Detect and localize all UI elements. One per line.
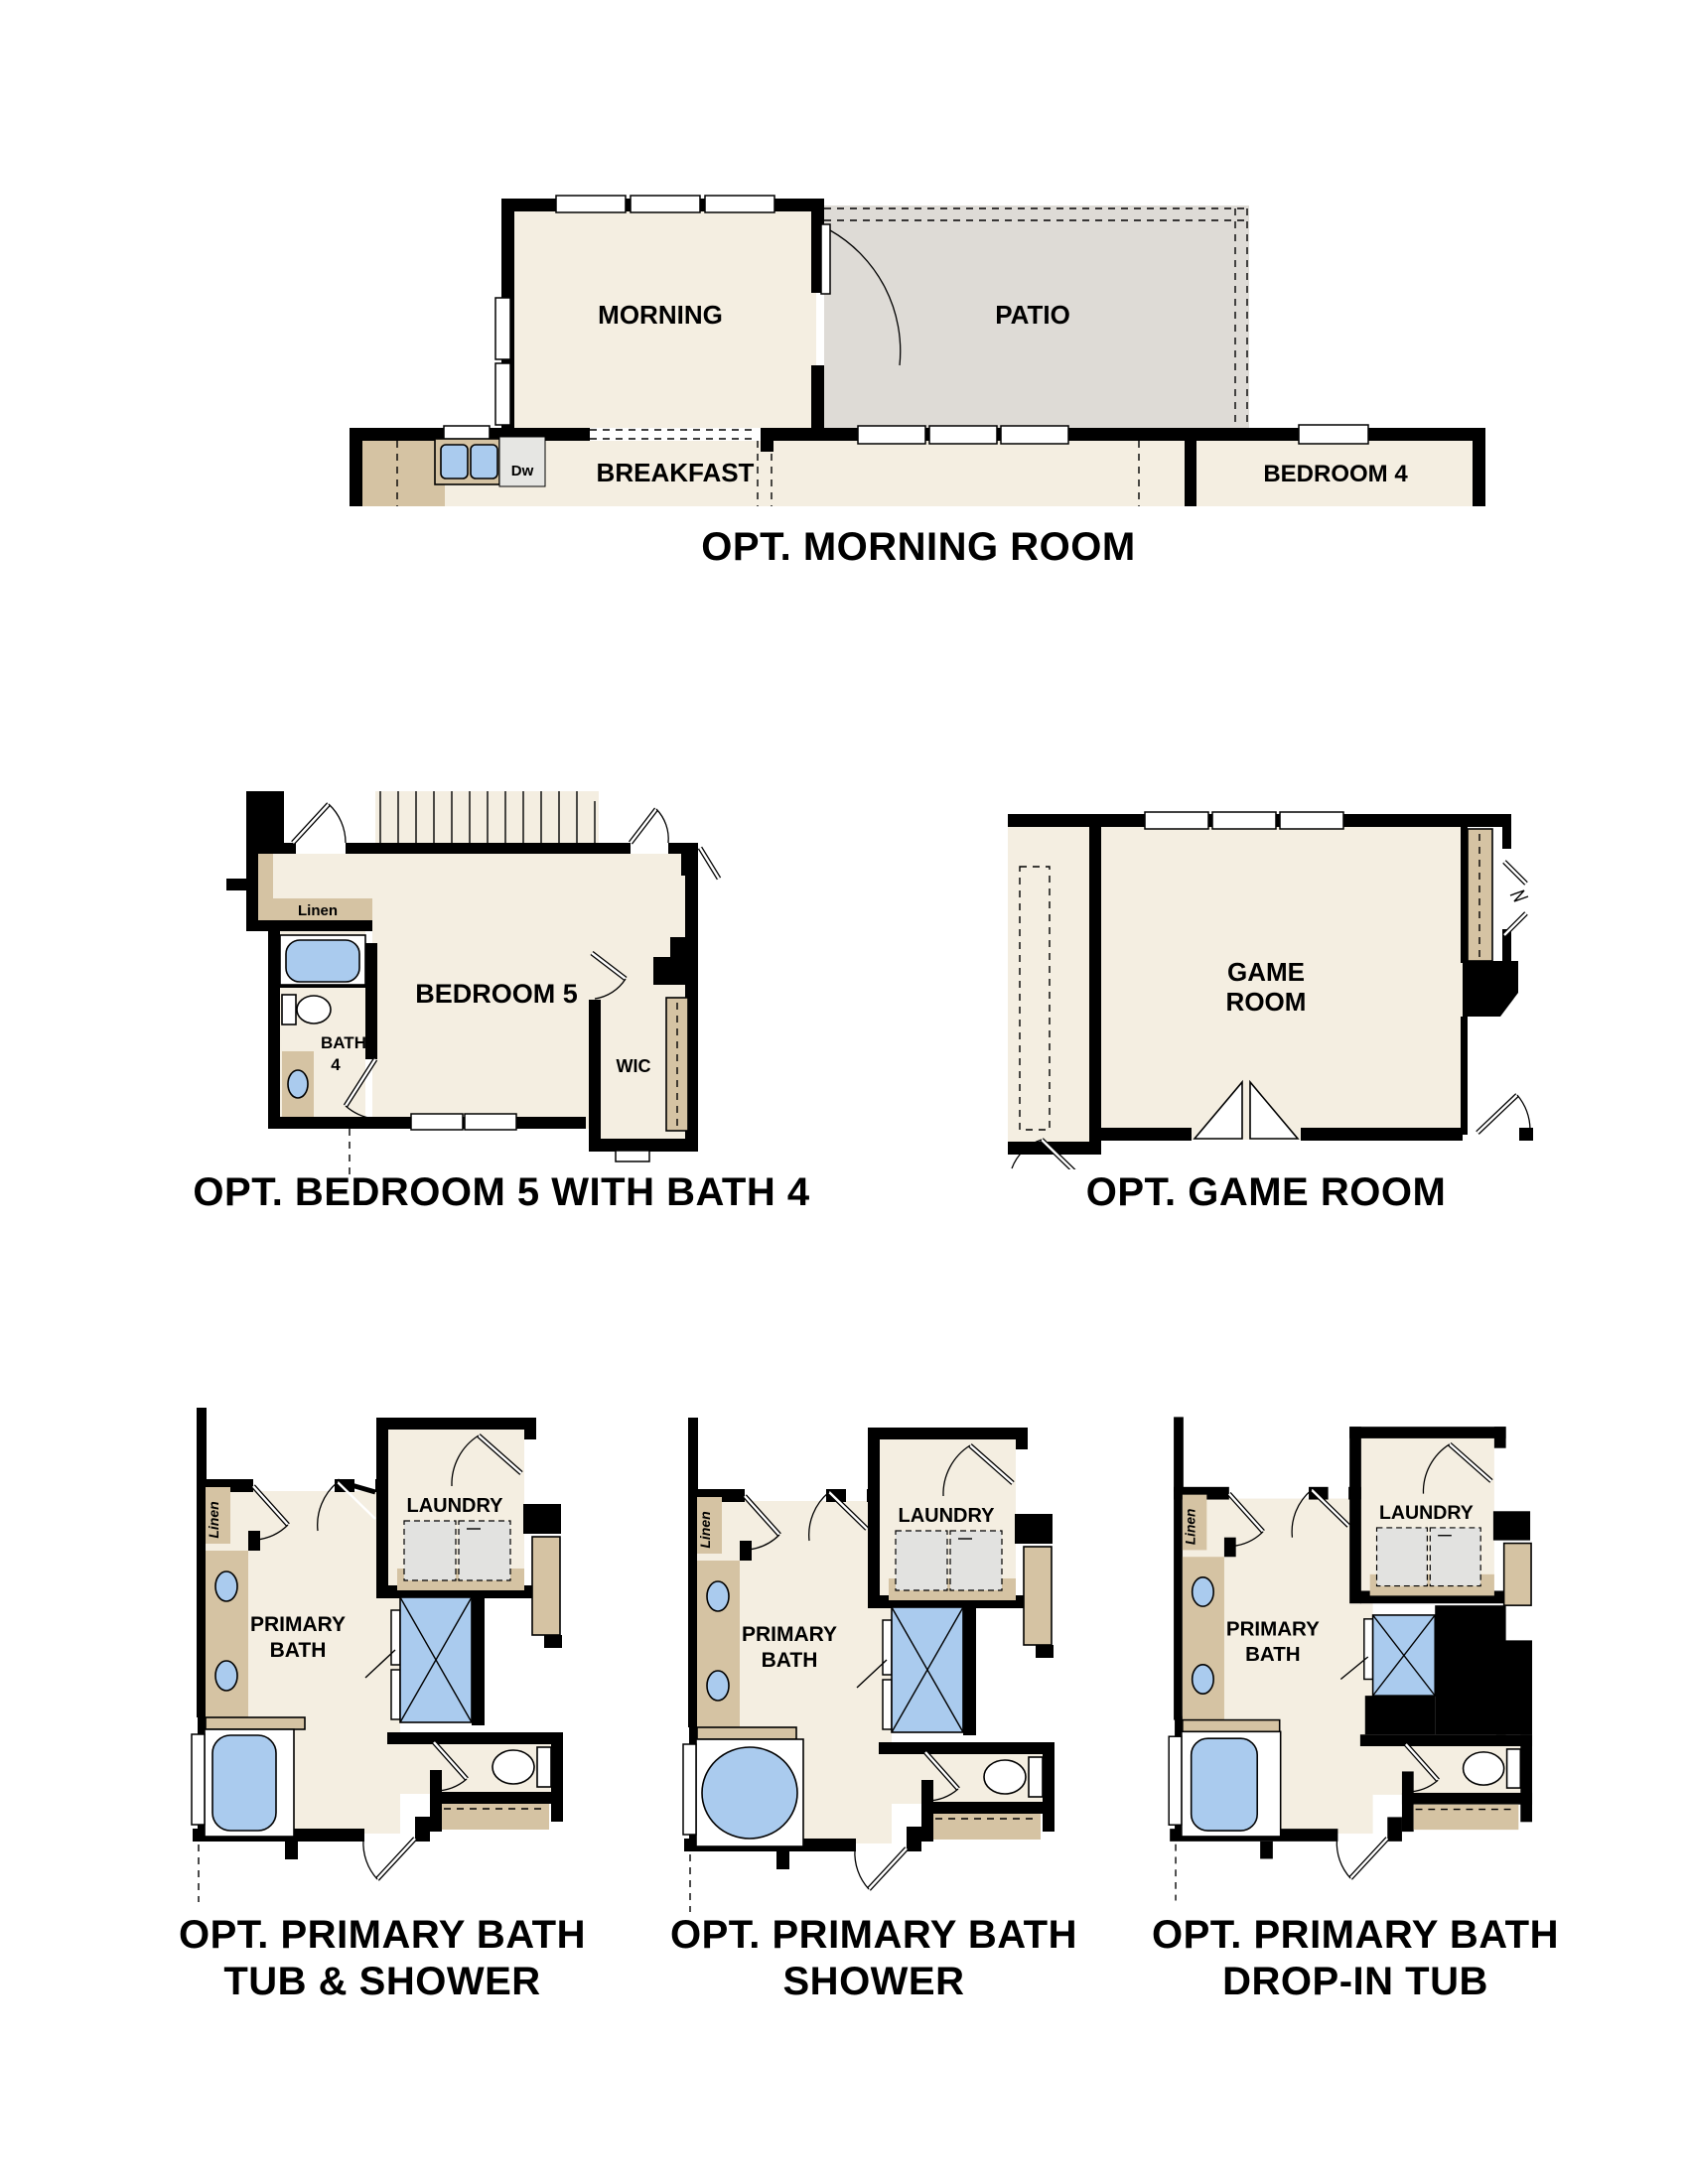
linen-label: Linen bbox=[298, 902, 338, 919]
primary-bath-label-line1: PRIMARY bbox=[250, 1613, 346, 1636]
floor-plan-primary-bath-dropin-tub: Linen LAUNDRY bbox=[1127, 1390, 1584, 1924]
washer bbox=[404, 1521, 456, 1580]
bath4-label-line2: 4 bbox=[331, 1055, 341, 1074]
linen-label: Linen bbox=[206, 1501, 221, 1538]
wic-vent bbox=[616, 1151, 649, 1161]
hall-closet bbox=[532, 1537, 560, 1635]
hall-closet bbox=[1504, 1544, 1531, 1606]
floor-plan-primary-bath-tub-shower: Linen LAUNDRY bbox=[149, 1380, 616, 1926]
toilet-bowl bbox=[297, 996, 331, 1024]
laundry-label: LAUNDRY bbox=[1379, 1502, 1474, 1524]
laundry-label: LAUNDRY bbox=[898, 1505, 995, 1527]
caption-bedroom5: OPT. BEDROOM 5 WITH BATH 4 bbox=[179, 1169, 824, 1216]
washer bbox=[1377, 1528, 1428, 1586]
toilet-bowl bbox=[984, 1760, 1026, 1794]
dishwasher-label: Dw bbox=[511, 463, 534, 479]
tub-backsplash bbox=[697, 1727, 796, 1739]
tub-backsplash bbox=[1183, 1720, 1280, 1732]
caption-game-room: OPT. GAME ROOM bbox=[978, 1169, 1554, 1216]
vanity-sink-top bbox=[707, 1581, 729, 1611]
window-row-patio-wall bbox=[856, 426, 1070, 444]
caption-primary-bath-tub-shower: OPT. PRIMARY BATHTUB & SHOWER bbox=[144, 1912, 621, 2005]
primary-bath-label-line1: PRIMARY bbox=[742, 1623, 837, 1646]
wic-label: WIC bbox=[617, 1056, 651, 1076]
tub-window bbox=[683, 1744, 696, 1835]
floor-plan-bedroom5: Linen BATH 4 WIC bbox=[226, 766, 723, 1178]
toilet-bowl bbox=[492, 1750, 534, 1784]
primary-bath-label-line2: BATH bbox=[270, 1639, 327, 1662]
vanity-sink-bottom bbox=[707, 1671, 729, 1701]
vanity-sink-bottom bbox=[215, 1661, 237, 1691]
entry-door-bottom bbox=[855, 1848, 907, 1889]
bedroom4-window bbox=[1299, 425, 1368, 444]
sink-bowl-right bbox=[471, 445, 497, 478]
bathtub-alcove bbox=[192, 1729, 294, 1837]
bathtub bbox=[1192, 1738, 1258, 1831]
linen-closet: Linen bbox=[258, 854, 372, 920]
game-room-label-line1: GAME bbox=[1227, 957, 1305, 987]
tub-window bbox=[192, 1734, 205, 1825]
linen-label: Linen bbox=[1184, 1509, 1198, 1546]
primary-bath-label-line2: BATH bbox=[762, 1649, 818, 1672]
floor-plan-options-sheet: Dw BREAKFAST BEDROOM 4 MORNING PATIO OPT… bbox=[0, 0, 1688, 2184]
primary-bath-label-line1: PRIMARY bbox=[1226, 1617, 1320, 1640]
game-room-label-line2: ROOM bbox=[1226, 987, 1307, 1017]
shower bbox=[1364, 1615, 1435, 1696]
bottom-right-door bbox=[1477, 1095, 1530, 1133]
caption-morning-room: OPT. MORNING ROOM bbox=[348, 524, 1489, 571]
shower bbox=[883, 1607, 963, 1732]
patio-label: PATIO bbox=[995, 300, 1070, 330]
toilet-tank bbox=[1029, 1757, 1043, 1797]
window-row-top bbox=[556, 196, 774, 212]
right-double-door bbox=[1504, 862, 1528, 935]
caption-primary-bath-dropin-tub: OPT. PRIMARY BATHDROP-IN TUB bbox=[1117, 1912, 1594, 2005]
bedroom5-label: BEDROOM 5 bbox=[415, 979, 578, 1009]
breakfast-label: BREAKFAST bbox=[597, 458, 755, 487]
tub-backsplash bbox=[206, 1717, 305, 1729]
entry-door-top bbox=[293, 804, 346, 843]
caption-primary-bath-shower: OPT. PRIMARY BATHSHOWER bbox=[635, 1912, 1112, 2005]
laundry-label: LAUNDRY bbox=[406, 1495, 503, 1517]
entry-door-bottom bbox=[1336, 1839, 1387, 1878]
dryer bbox=[950, 1531, 1002, 1590]
washer bbox=[896, 1531, 947, 1590]
hall-closet bbox=[1024, 1547, 1052, 1645]
linen-label: Linen bbox=[697, 1511, 713, 1548]
primary-bath-label-line2: BATH bbox=[1245, 1643, 1301, 1666]
entry-door-bottom bbox=[363, 1839, 415, 1879]
freestanding-tub bbox=[683, 1739, 803, 1846]
toilet-tank bbox=[1507, 1749, 1521, 1788]
bath4-label-line1: BATH bbox=[321, 1033, 366, 1052]
toilet-tank bbox=[537, 1747, 551, 1787]
vanity-sink-bottom bbox=[1193, 1665, 1214, 1694]
sink-bowl-left bbox=[441, 445, 468, 478]
vanity-sink-top bbox=[1193, 1577, 1214, 1606]
floor-plan-primary-bath-shower: Linen LAUNDRY bbox=[640, 1390, 1107, 1936]
morning-room-label: MORNING bbox=[598, 300, 723, 330]
dryer bbox=[1430, 1528, 1480, 1586]
vanity-sink-top bbox=[215, 1571, 237, 1601]
toilet-bowl bbox=[1464, 1752, 1504, 1785]
breakfast-strip: Dw BREAKFAST BEDROOM 4 bbox=[350, 425, 1485, 506]
dropin-tub bbox=[1169, 1731, 1280, 1837]
toilet-tank bbox=[282, 995, 296, 1024]
oval-bathtub bbox=[702, 1747, 797, 1839]
bedroom4-label: BEDROOM 4 bbox=[1263, 461, 1408, 487]
bathtub bbox=[286, 940, 359, 982]
tub-window bbox=[1169, 1736, 1182, 1825]
window-row-top bbox=[1145, 812, 1343, 829]
shower bbox=[391, 1597, 472, 1722]
right-closet bbox=[1468, 829, 1492, 961]
door-top-right bbox=[631, 809, 668, 843]
dryer bbox=[459, 1521, 510, 1580]
bath4-sink bbox=[288, 1070, 308, 1098]
floor-plan-game-room: GAME ROOM bbox=[978, 772, 1554, 1169]
bathtub bbox=[212, 1735, 276, 1831]
floor-plan-morning-room: Dw BREAKFAST BEDROOM 4 MORNING PATIO bbox=[348, 99, 1489, 506]
hall-door-outside bbox=[700, 848, 719, 879]
